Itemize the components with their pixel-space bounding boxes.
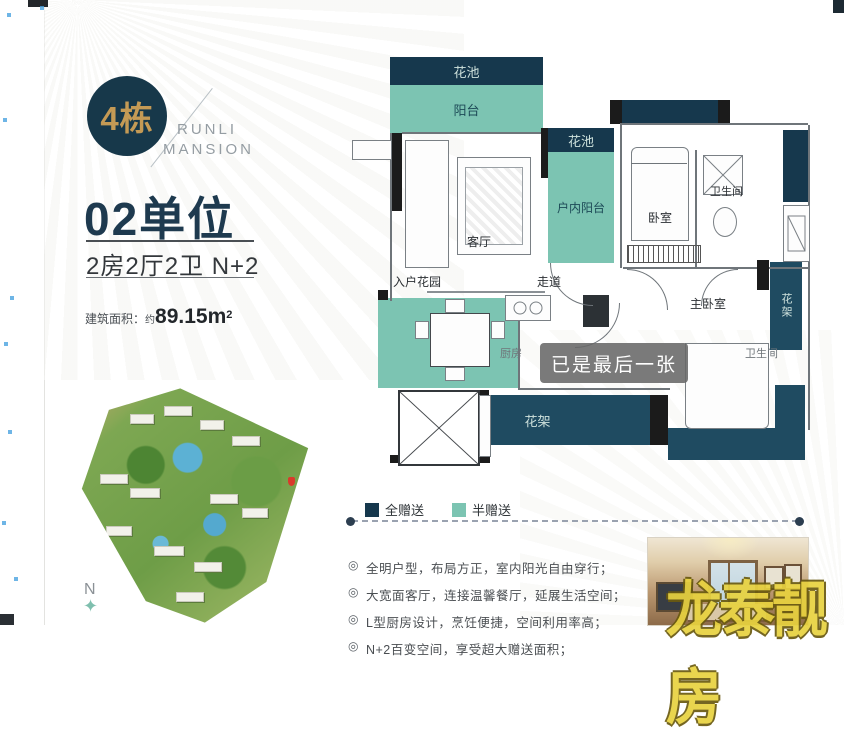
- dining-chair: [445, 367, 465, 381]
- wall-line: [808, 125, 810, 430]
- floor-area-sup: 2: [226, 309, 232, 321]
- scan-speck: [7, 13, 11, 17]
- legend-label-half: 半赠送: [472, 500, 511, 519]
- elevator-x-icon: [400, 392, 478, 464]
- site-building: [130, 488, 160, 498]
- room-label-living: 客厅: [467, 233, 491, 250]
- toilet: [713, 207, 737, 237]
- wardrobe: [627, 245, 701, 263]
- legend-swatch-full: [365, 503, 379, 517]
- wall: [541, 128, 548, 178]
- feature-text: N+2百变空间，享受超大赠送面积；: [366, 639, 573, 658]
- bed-bedroom: [631, 147, 689, 241]
- site-building: [210, 494, 238, 504]
- room-label-bathroom2: 卫生间: [745, 345, 778, 361]
- wall-line: [620, 123, 622, 268]
- site-building: [176, 592, 204, 602]
- compass-icon: ✦: [83, 596, 98, 617]
- flyer-viewer-canvas[interactable]: { "left": { "badge": "4栋", "brand_line1"…: [0, 0, 844, 625]
- scan-speck: [10, 296, 14, 300]
- zone-balcony: 阳台: [390, 85, 543, 133]
- scan-speck: [40, 6, 44, 10]
- divider: [86, 240, 254, 242]
- dining-chair: [415, 321, 429, 339]
- wall: [610, 100, 622, 124]
- zone-flower-bed-right: 花池: [548, 128, 614, 152]
- dashed-divider: [352, 520, 798, 522]
- feature-text: 全明户型，布局方正，室内阳光自由穿行；: [366, 558, 613, 577]
- watermark-text: 龙泰靓房: [666, 562, 844, 736]
- wall-line: [623, 267, 808, 269]
- zone-flower-bed-top: 花池: [390, 57, 543, 85]
- scan-speck: [8, 430, 12, 434]
- site-building: [194, 562, 222, 572]
- zone-label: 户内阳台: [557, 199, 605, 216]
- zone-label: 花架: [778, 293, 794, 319]
- floor-plan: 花池 阳台 花池 户内阳台 花架 花架: [345, 45, 844, 507]
- zone-indoor-balcony: 户内阳台: [548, 152, 614, 263]
- bullet-icon: ◎: [348, 585, 359, 604]
- carousel-toast-text: 已是最后一张: [551, 350, 677, 377]
- floor-area-approx: 约: [145, 315, 155, 326]
- wall: [650, 395, 668, 445]
- zone-flower-rack-right: 花架: [770, 262, 802, 350]
- feature-item: ◎ 全明户型，布局方正，室内阳光自由穿行；: [348, 558, 658, 577]
- divider-end-dot: [346, 517, 355, 526]
- door-arc: [575, 303, 620, 348]
- divider-end-dot: [795, 517, 804, 526]
- door-arc: [627, 269, 668, 310]
- building-badge-label: 4栋: [100, 92, 153, 140]
- room-label-bedroom: 卧室: [648, 209, 672, 226]
- feature-item: ◎ 大宽面客厅，连接温馨餐厅，延展生活空间；: [348, 585, 658, 604]
- room-label-entry-garden: 入户花园: [393, 273, 441, 290]
- bullet-icon: ◎: [348, 639, 359, 658]
- zone-window-band-bedroom: [620, 100, 730, 123]
- feature-item: ◎ N+2百变空间，享受超大赠送面积；: [348, 639, 658, 658]
- site-building: [232, 436, 260, 446]
- feature-text: L型厨房设计，烹饪便捷，空间利用率高；: [366, 612, 607, 631]
- room-label-corridor: 走道: [537, 273, 561, 290]
- dining-chair: [491, 321, 505, 339]
- stove-burners-icon: [506, 296, 550, 320]
- building-badge: 4栋: [87, 76, 167, 156]
- wall: [757, 260, 769, 290]
- zone-label: 花架: [524, 411, 550, 430]
- zone-window-band-right: [783, 130, 808, 202]
- elevator-door: [479, 395, 491, 457]
- legend-swatch-half: [452, 503, 466, 517]
- brand-name-line2: MANSION: [163, 140, 254, 160]
- sofa: [405, 140, 449, 268]
- site-building: [164, 406, 192, 416]
- dining-chair: [445, 299, 465, 313]
- bullet-icon: ◎: [348, 558, 359, 577]
- brand-name-line1: RUNLI: [177, 120, 237, 140]
- scan-speck: [2, 521, 6, 525]
- carousel-toast: 已是最后一张: [540, 343, 688, 383]
- site-building: [130, 414, 154, 424]
- scan-speck: [14, 577, 18, 581]
- washer-niche: [783, 205, 810, 262]
- zone-label: 花池: [568, 131, 594, 150]
- stove: [505, 295, 551, 321]
- feature-list: ◎ 全明户型，布局方正，室内阳光自由穿行； ◎ 大宽面客厅，连接温馨餐厅，延展生…: [348, 558, 658, 666]
- room-label-master: 主卧室: [690, 295, 726, 312]
- site-building: [200, 420, 224, 430]
- washer-icon: [784, 206, 809, 261]
- zone-window-band-corner: [775, 385, 805, 460]
- scan-artifact: [28, 0, 48, 7]
- dining-table: [430, 313, 490, 367]
- scan-speck: [3, 118, 7, 122]
- scan-speck: [4, 342, 8, 346]
- scan-artifact: [833, 0, 844, 13]
- wall: [378, 290, 388, 300]
- site-building: [100, 474, 128, 484]
- kitchen-counter-line: [427, 291, 545, 293]
- site-building: [154, 546, 184, 556]
- photo-chandelier-glow: [700, 538, 760, 560]
- bullet-icon: ◎: [348, 612, 359, 631]
- site-building: [242, 508, 268, 518]
- elevator: [398, 390, 480, 466]
- wall: [718, 100, 730, 124]
- legend-item-full-gift: 全赠送: [365, 500, 424, 519]
- zone-label: 阳台: [453, 100, 479, 119]
- divider: [86, 277, 254, 278]
- site-building: [106, 526, 132, 536]
- wall-line: [520, 388, 670, 390]
- wall-line: [402, 132, 548, 134]
- floor-area-label: 建筑面积：: [85, 312, 145, 326]
- feature-text: 大宽面客厅，连接温馨餐厅，延展生活空间；: [366, 585, 626, 604]
- legend-item-half-gift: 半赠送: [452, 500, 511, 519]
- floor-area: 建筑面积：约89.15m2: [85, 305, 232, 329]
- unit-spec: 2房2厅2卫 N+2: [86, 246, 259, 281]
- wall-line: [620, 123, 808, 125]
- legend-label-full: 全赠送: [385, 500, 424, 519]
- scan-artifact: [0, 614, 14, 625]
- legend: 全赠送 半赠送: [365, 500, 529, 519]
- floor-area-value: 89.15m: [155, 305, 226, 328]
- room-label-bathroom: 卫生间: [710, 183, 743, 199]
- bed-pillow-line: [631, 163, 687, 164]
- ac-platform: [352, 140, 392, 160]
- site-map-marker: [288, 477, 295, 486]
- room-label-kitchen: 厨房: [500, 345, 522, 361]
- zone-label: 花池: [453, 62, 479, 81]
- feature-item: ◎ L型厨房设计，烹饪便捷，空间利用率高；: [348, 612, 658, 631]
